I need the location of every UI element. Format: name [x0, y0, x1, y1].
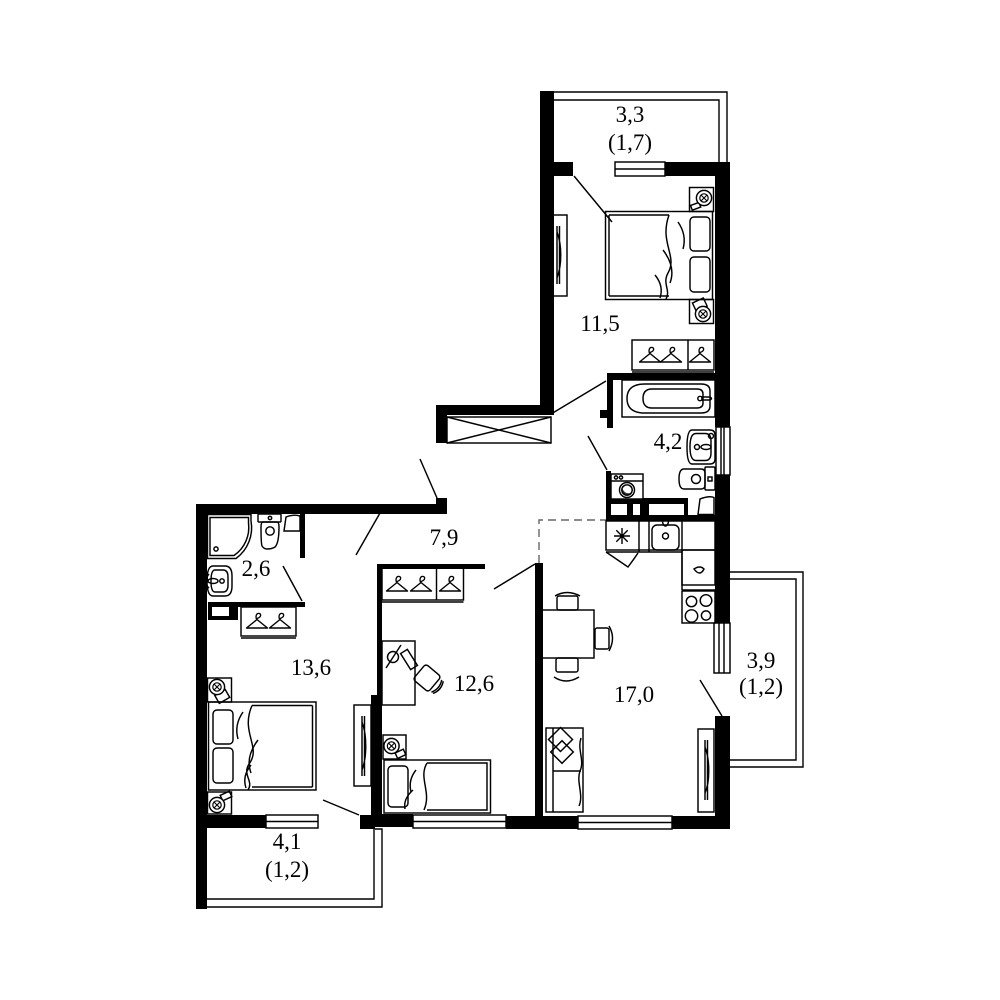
svg-text:13,6: 13,6 — [291, 655, 331, 680]
svg-text:3,9: 3,9 — [747, 648, 776, 673]
svg-text:2,6: 2,6 — [242, 556, 271, 581]
svg-text:3,3: 3,3 — [616, 102, 645, 127]
svg-text:4,1: 4,1 — [273, 829, 302, 854]
svg-text:(1,7): (1,7) — [608, 130, 652, 155]
svg-text:4,2: 4,2 — [654, 429, 683, 454]
svg-text:(1,2): (1,2) — [265, 857, 309, 882]
svg-text:11,5: 11,5 — [580, 311, 619, 336]
svg-text:(1,2): (1,2) — [739, 674, 783, 699]
svg-text:7,9: 7,9 — [430, 525, 459, 550]
svg-text:12,6: 12,6 — [454, 671, 494, 696]
svg-text:17,0: 17,0 — [614, 682, 654, 707]
